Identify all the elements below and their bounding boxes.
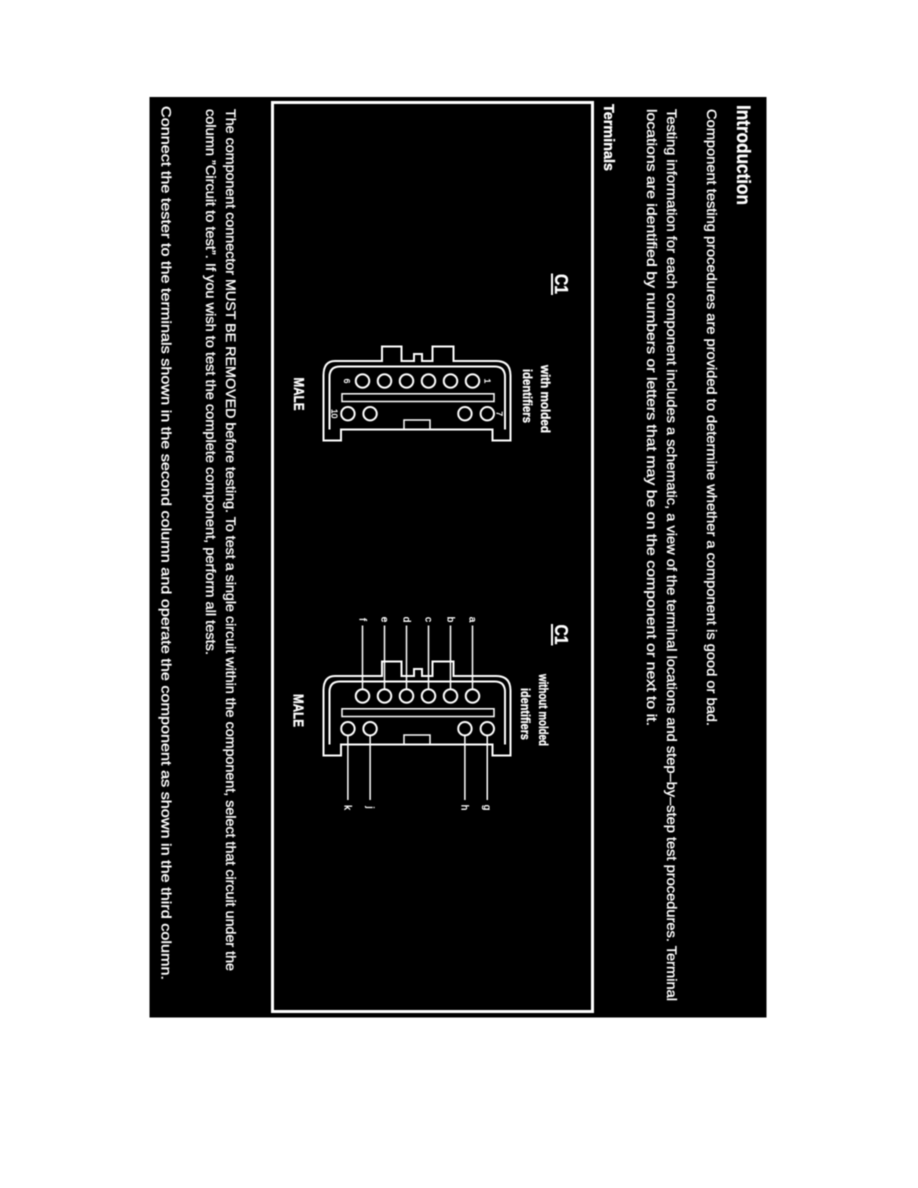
svg-text:without molded: without molded — [536, 673, 550, 746]
svg-text:identifiers: identifiers — [518, 688, 532, 740]
svg-text:b: b — [444, 617, 455, 623]
svg-text:10: 10 — [330, 409, 340, 419]
svg-text:Testing information for each c: Testing information for each component i… — [664, 109, 680, 1001]
svg-text:The component connector MUST B: The component connector MUST BE REMOVED … — [223, 109, 239, 971]
svg-text:Component testing procedures a: Component testing procedures are provide… — [704, 109, 720, 726]
svg-text:C1: C1 — [551, 625, 572, 645]
svg-text:h: h — [459, 805, 470, 811]
svg-text:identifiers: identifiers — [520, 369, 534, 423]
svg-text:c: c — [422, 617, 433, 622]
svg-text:g: g — [481, 805, 492, 811]
svg-text:locations are identified by nu: locations are identified by numbers or l… — [644, 109, 660, 726]
svg-text:MALE: MALE — [290, 378, 306, 411]
svg-text:7: 7 — [495, 411, 505, 416]
svg-text:e: e — [378, 617, 389, 623]
svg-text:d: d — [400, 617, 411, 623]
svg-text:with molded: with molded — [538, 364, 552, 433]
svg-text:6: 6 — [342, 379, 352, 384]
svg-text:f: f — [356, 618, 367, 621]
svg-text:Terminals: Terminals — [600, 104, 617, 171]
svg-text:MALE: MALE — [290, 694, 306, 727]
svg-text:a: a — [466, 617, 477, 623]
svg-text:1: 1 — [483, 379, 493, 384]
svg-text:column ”Circuit to test”. If y: column ”Circuit to test”. If you wish to… — [203, 109, 219, 655]
svg-text:C1: C1 — [551, 274, 572, 294]
svg-text:Introduction: Introduction — [732, 105, 753, 205]
svg-text:Connect the tester to the term: Connect the tester to the terminals show… — [159, 106, 175, 980]
svg-text:j: j — [364, 805, 375, 808]
